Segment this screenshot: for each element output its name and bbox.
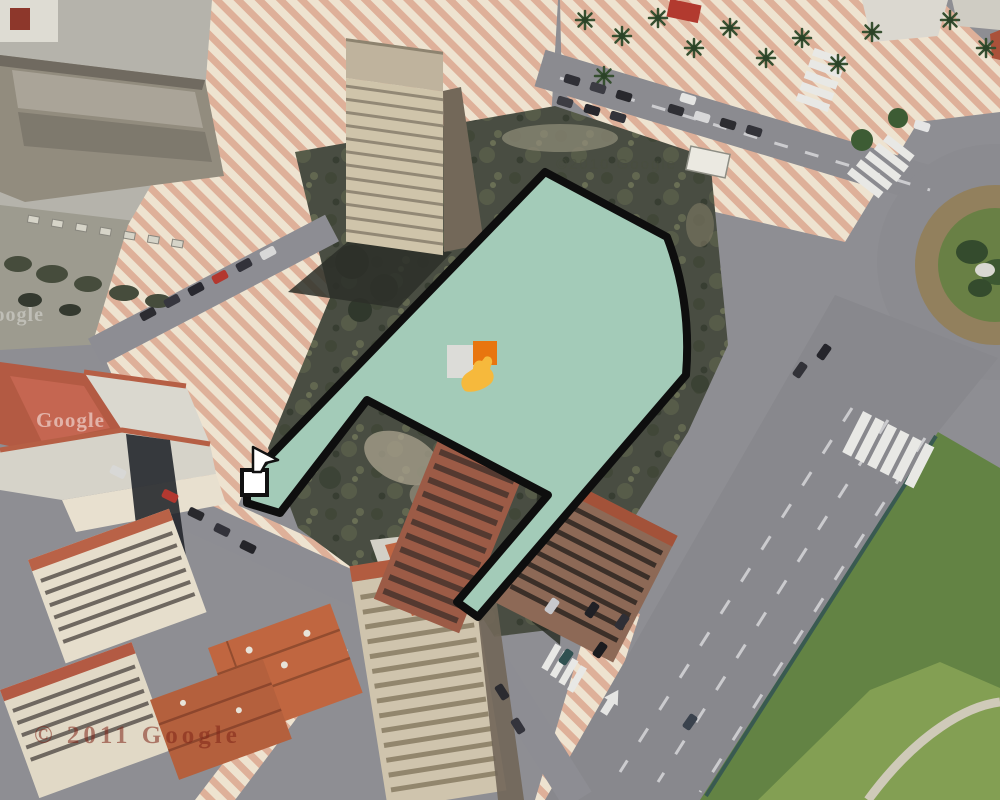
aerial-map-view: ©2010 Google Google Google © 2011 Google	[0, 0, 1000, 800]
vertex-handle[interactable]	[242, 470, 267, 495]
aerial-photo	[0, 0, 1000, 800]
